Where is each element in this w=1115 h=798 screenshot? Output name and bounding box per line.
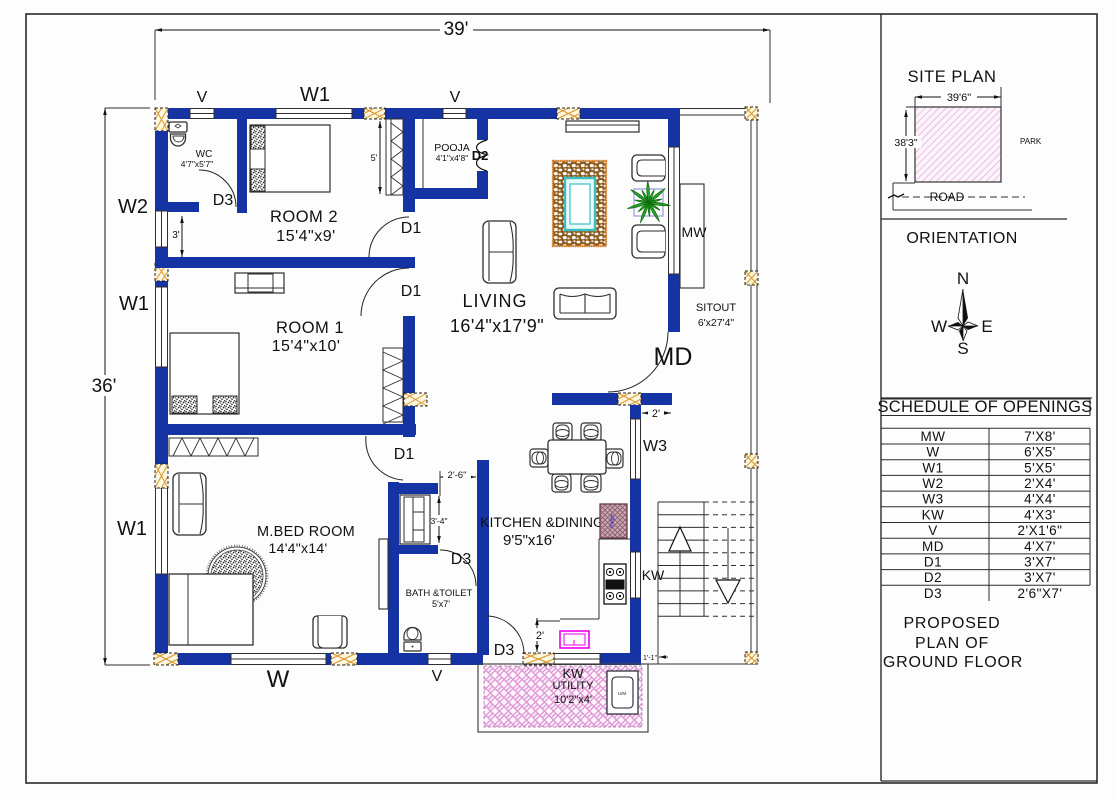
svg-text:2': 2' (536, 630, 544, 642)
svg-text:W3: W3 (922, 492, 943, 507)
svg-text:D3: D3 (924, 586, 942, 601)
svg-text:10'2"x4': 10'2"x4' (554, 694, 592, 706)
svg-text:W: W (931, 317, 947, 336)
svg-text:U/M: U/M (618, 691, 627, 696)
svg-text:3'X7': 3'X7' (1024, 555, 1056, 570)
svg-text:6'X5': 6'X5' (1024, 445, 1056, 460)
svg-text:V: V (928, 523, 938, 538)
svg-text:D1: D1 (394, 446, 415, 463)
svg-text:2': 2' (652, 408, 660, 420)
svg-text:KW: KW (922, 507, 945, 522)
svg-text:W: W (926, 445, 939, 460)
svg-text:fridge: fridge (610, 514, 616, 528)
svg-text:15'4"x9': 15'4"x9' (276, 228, 335, 245)
svg-text:MW: MW (921, 429, 946, 444)
svg-text:SCHEDULE OF OPENINGS: SCHEDULE OF OPENINGS (877, 398, 1092, 416)
svg-text:W2: W2 (118, 196, 148, 218)
svg-text:D2: D2 (924, 570, 942, 585)
svg-text:4'7"x5'7": 4'7"x5'7" (181, 159, 213, 169)
svg-text:MD: MD (922, 539, 944, 554)
svg-text:6'x27'4": 6'x27'4" (698, 317, 735, 329)
svg-text:3': 3' (172, 230, 180, 241)
svg-text:M.BED ROOM: M.BED ROOM (257, 524, 355, 540)
svg-text:SITOUT: SITOUT (696, 302, 736, 314)
svg-text:W1: W1 (117, 518, 147, 540)
svg-text:KITCHEN &DINING: KITCHEN &DINING (480, 514, 604, 530)
svg-text:3'-4": 3'-4" (431, 516, 448, 526)
svg-text:PLAN OF: PLAN OF (915, 635, 989, 652)
svg-text:2'6"X7': 2'6"X7' (1018, 586, 1063, 601)
svg-text:ROAD: ROAD (930, 190, 965, 204)
svg-text:BATH &TOILET: BATH &TOILET (406, 588, 473, 599)
svg-text:D3: D3 (494, 642, 515, 659)
svg-text:4'X3': 4'X3' (1024, 507, 1056, 522)
svg-text:39'6": 39'6" (947, 92, 971, 104)
svg-text:14'4"x14': 14'4"x14' (269, 540, 328, 556)
svg-text:39': 39' (444, 19, 469, 40)
svg-text:D3: D3 (451, 551, 472, 568)
svg-text:D3: D3 (213, 192, 234, 209)
svg-text:LIVING: LIVING (462, 291, 527, 311)
svg-text:SITE PLAN: SITE PLAN (908, 68, 997, 86)
svg-text:15'4"x10': 15'4"x10' (272, 338, 341, 355)
svg-text:N: N (957, 269, 969, 288)
svg-text:D2: D2 (472, 148, 489, 163)
svg-text:7'X8': 7'X8' (1024, 429, 1056, 444)
svg-text:MD: MD (654, 343, 693, 371)
svg-text:5'X5': 5'X5' (1024, 460, 1056, 475)
svg-text:W3: W3 (643, 438, 667, 455)
svg-text:W1: W1 (300, 84, 330, 106)
svg-text:KW: KW (642, 567, 665, 583)
svg-text:KW: KW (563, 666, 585, 681)
svg-text:PROPOSED: PROPOSED (903, 615, 1000, 632)
svg-text:38'3": 38'3" (894, 137, 918, 149)
svg-text:W2: W2 (922, 476, 943, 491)
svg-text:5': 5' (371, 153, 378, 163)
svg-text:ORIENTATION: ORIENTATION (906, 230, 1017, 247)
svg-text:W1: W1 (119, 293, 149, 315)
svg-text:2'-6": 2'-6" (448, 470, 467, 481)
svg-text:4'1"x4'8": 4'1"x4'8" (436, 153, 468, 163)
svg-text:V: V (432, 668, 443, 685)
svg-text:16'4"x17'9": 16'4"x17'9" (450, 316, 544, 336)
svg-text:GROUND FLOOR: GROUND FLOOR (883, 654, 1023, 671)
svg-text:D1: D1 (924, 555, 942, 570)
svg-text:3'X7': 3'X7' (1024, 570, 1056, 585)
svg-text:V: V (197, 89, 208, 106)
svg-text:MW: MW (682, 224, 708, 240)
svg-text:2'X1'6": 2'X1'6" (1018, 523, 1063, 538)
svg-text:4'X7': 4'X7' (1024, 539, 1056, 554)
svg-text:ROOM 1: ROOM 1 (276, 319, 344, 337)
svg-text:E: E (981, 317, 992, 336)
svg-text:1'-1": 1'-1" (643, 655, 657, 662)
svg-text:W1: W1 (922, 460, 943, 475)
svg-text:V: V (450, 89, 461, 106)
svg-text:PARK: PARK (1020, 137, 1042, 146)
svg-text:4'X4': 4'X4' (1024, 492, 1056, 507)
svg-text:36': 36' (92, 376, 117, 397)
svg-text:W: W (267, 666, 290, 693)
svg-text:2'X4': 2'X4' (1024, 476, 1056, 491)
svg-text:D1: D1 (401, 220, 422, 237)
svg-text:9'5"x16': 9'5"x16' (503, 532, 555, 549)
svg-text:5'x7': 5'x7' (432, 599, 450, 609)
svg-text:UTILITY: UTILITY (553, 680, 595, 692)
svg-text:ROOM 2: ROOM 2 (270, 208, 338, 226)
svg-text:D1: D1 (401, 283, 422, 300)
svg-text:S: S (957, 339, 968, 358)
